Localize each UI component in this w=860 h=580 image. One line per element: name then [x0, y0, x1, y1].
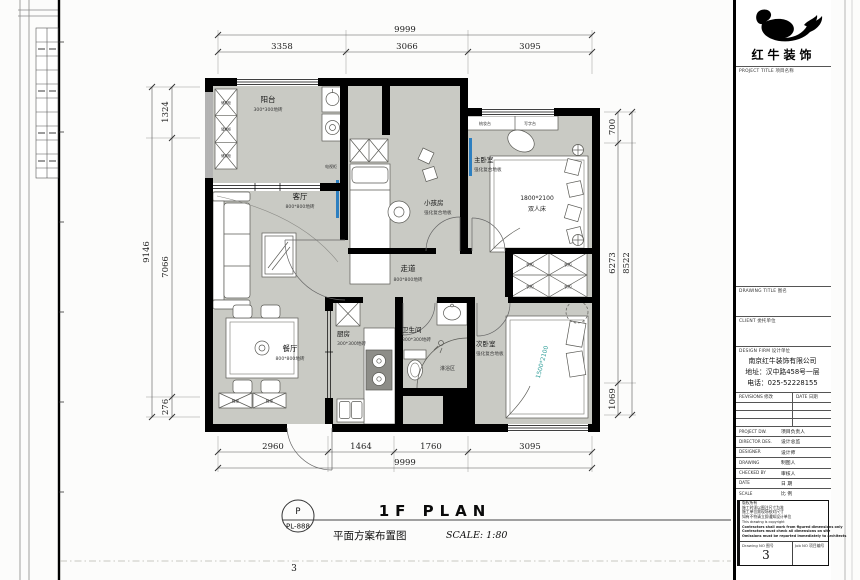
job-no-label: Job NO 项目编号 [795, 543, 824, 549]
label-living: 客厅 [293, 191, 308, 201]
label-tv-cabinet: 电视柜 [325, 163, 337, 169]
label-kitchen-finish: 300*300地砖 [337, 340, 366, 347]
design-firm-label: DESIGN FIRM 设计单位 [739, 348, 790, 354]
tb-rule [736, 66, 831, 67]
dim-top-overall: 9999 [394, 25, 416, 35]
dim-bottom-4: 3095 [519, 442, 541, 452]
info-row: DRAWING制图人 [736, 457, 831, 467]
label-living-finish: 800*800地砖 [285, 203, 314, 210]
label-wardrobe-1: 衣柜 [526, 261, 534, 267]
row-cn: 设计师 [781, 449, 795, 456]
label-bath: 卫生间 [402, 325, 422, 334]
brand-name: 红牛装饰 [736, 46, 831, 63]
label-kids-finish: 强化复合地板 [424, 209, 452, 216]
bath-vanity [437, 301, 467, 325]
row-en: DIRECTOR DES. [739, 439, 772, 444]
balcony-side-window [205, 92, 213, 178]
label-dining-finish: 800*800地砖 [275, 355, 304, 362]
tb-rule [736, 316, 831, 317]
sofa [213, 192, 250, 309]
kids-bed [350, 164, 390, 284]
row-en: CHECKED BY [739, 470, 766, 475]
second-bottom-window [508, 424, 588, 432]
label-wardrobe-4: 衣柜 [564, 283, 572, 289]
plan-title-en: 1F PLAN [379, 502, 492, 520]
firm-info: 南京红牛装饰有限公司 地址：汉中路458号一层 电话：025-52228155 [736, 356, 829, 389]
info-row: PROJECT DW.项目负责人 [736, 426, 831, 436]
second-bed [506, 316, 588, 418]
label-corridor: 走道 [401, 263, 416, 273]
label-shoe-cabinet-2: 鞋柜 [266, 399, 274, 404]
row-cn: 制图人 [781, 459, 795, 466]
firm-phone: 电话：025-52228155 [736, 378, 829, 389]
tb-rule [736, 286, 831, 287]
info-row: SCALE比 例 [736, 488, 831, 498]
tb-rule [736, 346, 831, 347]
drawing-no-value: 3 [740, 548, 792, 562]
label-kids: 小孩房 [424, 198, 444, 207]
client-label: CLIENT 委托单位 [739, 318, 776, 324]
row-en: DRAWING [739, 460, 759, 465]
kids-wardrobe [350, 139, 388, 162]
dim-left-3: 276 [161, 399, 171, 415]
entry-gap [287, 424, 332, 432]
dim-left-overall: 9146 [142, 241, 152, 263]
firm-name: 南京红牛装饰有限公司 [736, 356, 829, 367]
tb-rule [740, 541, 828, 542]
label-dressing-table: 梳妆台 [479, 120, 491, 126]
label-shower: 淋浴区 [440, 365, 455, 372]
info-row: DESIGNER设计师 [736, 447, 831, 457]
label-master-finish: 强化复合地板 [474, 166, 502, 173]
project-title-label: PROJECT TITLE 项目名称 [739, 68, 794, 74]
label-corridor-finish: 800*800地砖 [393, 276, 422, 283]
drawing-sheet: 阳台 300*300地砖 客厅 800*800地砖 电视柜 小孩房 强化复合地板… [0, 0, 860, 580]
label-balcony-cab-3: 储物柜 [221, 153, 232, 158]
master-tv [469, 138, 472, 176]
firm-address: 地址：汉中路458号一层 [736, 367, 829, 378]
sheet-letter: P [295, 507, 300, 517]
dim-bottom-3: 1760 [420, 442, 442, 452]
tb-rule [736, 402, 831, 403]
row-cn: 设计总监 [781, 438, 800, 445]
tb-rule [792, 541, 793, 565]
floor-plan-canvas: 阳台 300*300地砖 客厅 800*800地砖 电视柜 小孩房 强化复合地板… [0, 0, 860, 580]
hall-wardrobe [511, 253, 587, 297]
dim-top-2: 3066 [396, 42, 418, 52]
label-second-finish: 强化复合地板 [476, 350, 504, 357]
notes-box: 版权所有 施工时须以图注尺寸为准 施工单位需现场核对尺寸 如有不符请立即通知设计… [737, 500, 829, 566]
tb-rule [736, 418, 831, 419]
label-master-bed-name: 双人床 [528, 205, 546, 213]
label-balcony-finish: 300*300地砖 [253, 106, 282, 113]
dim-left-2: 7066 [161, 256, 171, 278]
master-top-window [482, 108, 554, 116]
info-row: DATE日 期 [736, 478, 831, 488]
title-block: 红牛装饰 PROJECT TITLE 项目名称 DRAWING TITLE 图名… [733, 0, 831, 580]
dim-bottom-overall: 9999 [394, 458, 416, 468]
drawing-title-label: DRAWING TITLE 图名 [739, 288, 787, 294]
balcony-sliding-door [213, 183, 320, 191]
row-en: PROJECT DW. [739, 429, 767, 434]
page-number: 3 [291, 564, 297, 574]
label-wardrobe-2: 衣柜 [564, 261, 572, 267]
plan-scale: SCALE: 1:80 [446, 530, 507, 541]
dim-right-2: 6273 [608, 252, 618, 274]
revisions-label: REVISIONS 修改 [739, 394, 773, 400]
dim-right-1: 700 [608, 119, 618, 135]
row-cn: 项目负责人 [781, 428, 805, 435]
revisions-divider [792, 392, 793, 426]
entry-door [287, 428, 332, 470]
kitchen-flue [336, 301, 360, 326]
label-balcony: 阳台 [261, 94, 276, 104]
label-kitchen: 厨房 [337, 329, 350, 338]
row-en: SCALE [739, 491, 752, 496]
row-cn: 比 例 [781, 490, 792, 497]
label-writing-desk: 写字台 [524, 120, 536, 126]
coffee-table [262, 233, 296, 277]
label-master: 主卧室 [474, 155, 494, 164]
dim-top-1: 3358 [271, 42, 293, 52]
plan-title-cn: 平面方案布置图 [333, 529, 407, 542]
balcony-top-window [237, 78, 318, 86]
label-bath-finish: 300*300地砖 [402, 336, 431, 343]
label-second: 次卧室 [476, 339, 496, 348]
row-en: DESIGNER [739, 449, 761, 454]
kids-chair [388, 201, 410, 223]
kitchen-sink [337, 399, 364, 422]
label-balcony-cab-1: 储物柜 [221, 100, 232, 105]
revisions-header: REVISIONS 修改 DATE 日期 [736, 393, 831, 402]
sheet-code: PL-888 [286, 523, 310, 531]
info-rows: PROJECT DW.项目负责人 DIRECTOR DES.设计总监 DESIG… [736, 426, 831, 499]
row-cn: 审核人 [781, 470, 795, 477]
dim-left-1: 1324 [161, 101, 171, 123]
brand-logo [746, 8, 824, 44]
dim-right-overall: 8522 [622, 252, 632, 274]
label-balcony-cab-2: 储物柜 [221, 127, 232, 132]
row-en: DATE [739, 480, 750, 485]
label-master-bed-size: 1800*2100 [520, 195, 554, 202]
stove [366, 350, 392, 390]
label-shoe-cabinet-1: 鞋柜 [232, 399, 240, 404]
revision-date-label: DATE 日期 [796, 394, 818, 400]
row-cn: 日 期 [781, 480, 792, 487]
washing-machine [322, 114, 343, 141]
balcony-sink [322, 87, 343, 112]
info-row: DIRECTOR DES.设计总监 [736, 436, 831, 446]
label-dining: 餐厅 [283, 344, 298, 353]
plan-title-group: P PL-888 1F PLAN 平面方案布置图 SCALE: 1:80 3 [282, 500, 731, 574]
dim-top-3: 3095 [519, 42, 541, 52]
dim-bottom-2: 1464 [350, 442, 372, 452]
dim-bottom-1: 2960 [262, 442, 284, 452]
note-line: Omissions must be reported immediately t… [740, 534, 828, 539]
label-wardrobe-3: 衣柜 [526, 283, 534, 289]
info-row: CHECKED BY审核人 [736, 468, 831, 478]
dim-right-3: 1069 [608, 388, 618, 410]
tb-rule [736, 410, 831, 411]
